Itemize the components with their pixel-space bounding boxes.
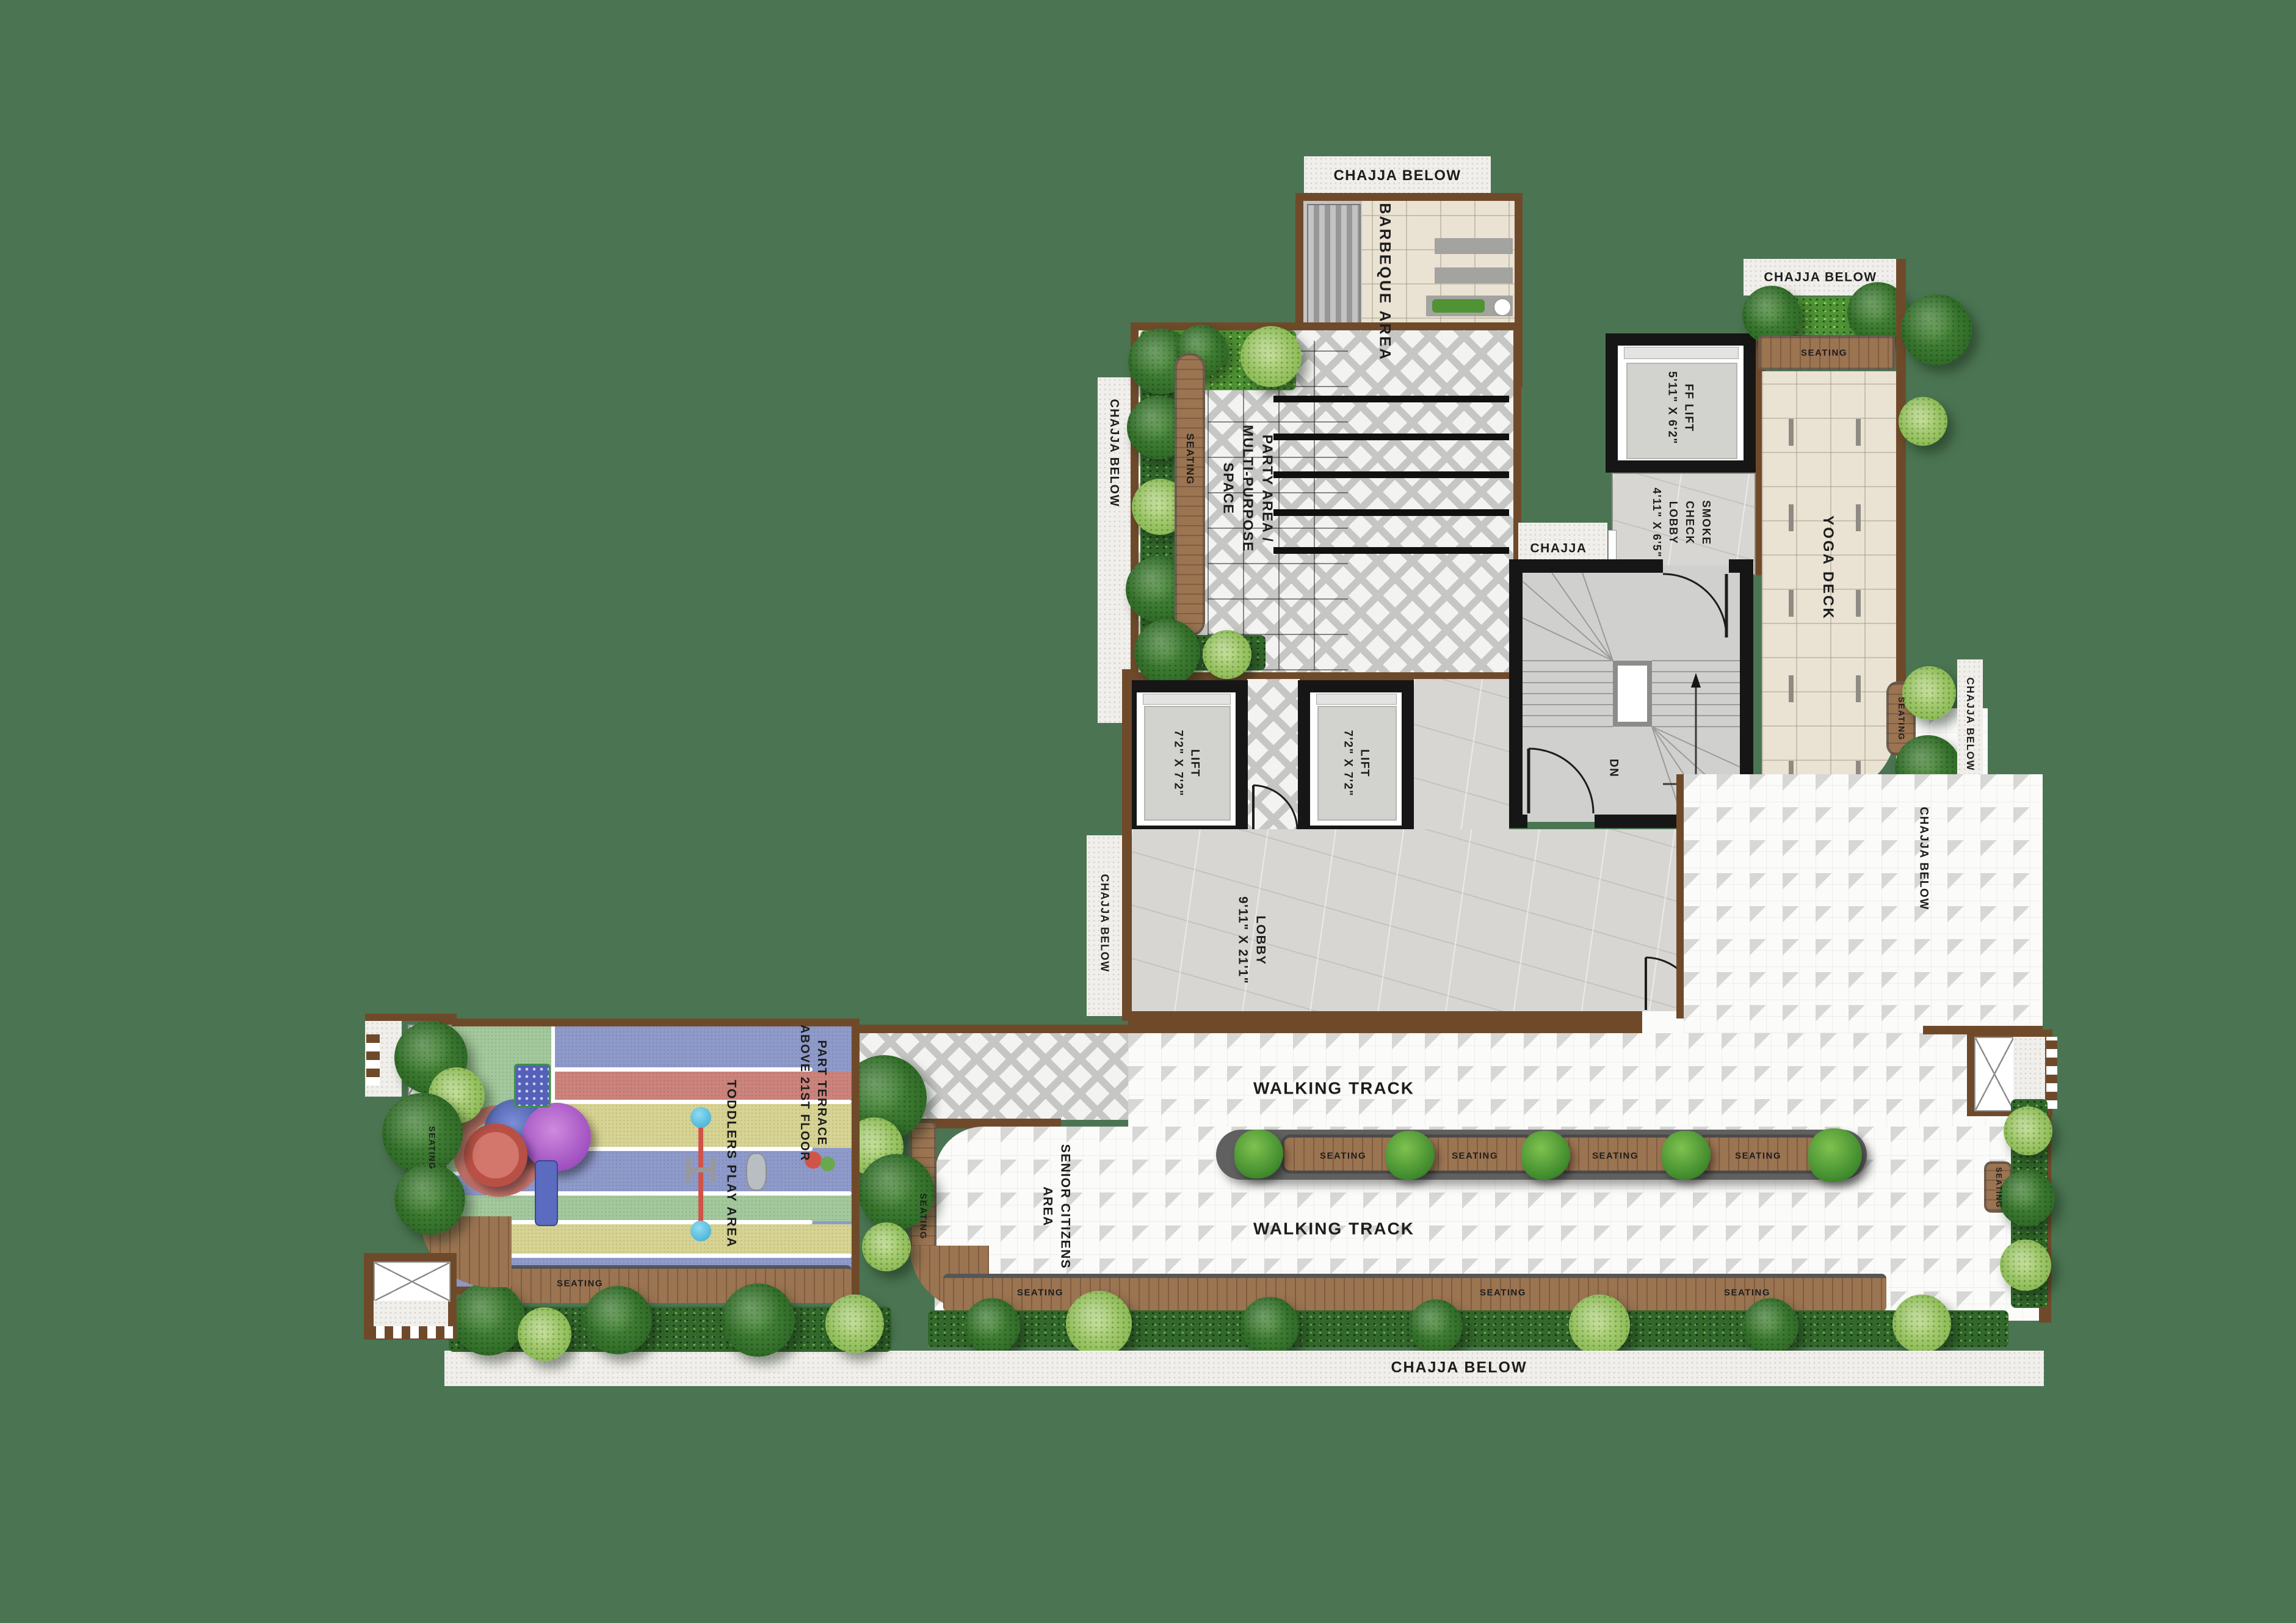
label-barbeque-area: BARBEQUE AREA: [1374, 203, 1396, 361]
label-toddlers-play-area: TODDLERS PLAY AREA: [722, 1080, 740, 1247]
pergola-beam: [1273, 434, 1509, 440]
label-dn: DN: [1605, 759, 1621, 777]
door-arc-passage: [1248, 780, 1300, 833]
label-seating-serp-4: SEATING: [1735, 1150, 1781, 1163]
label-chajja-below-bottom: CHAJJA BELOW: [1391, 1357, 1527, 1379]
tree-icon: [1203, 630, 1251, 679]
tree-icon: [1066, 1291, 1132, 1357]
tree-icon: [2004, 1106, 2052, 1155]
tree-icon: [964, 1298, 1020, 1354]
label-chajja-below-party-left: CHAJJA BELOW: [1106, 399, 1123, 507]
slide-icon: [535, 1160, 558, 1226]
tree-icon: [1240, 326, 1302, 387]
ff-lift-door: [1624, 347, 1739, 359]
edge-checker-right: [2046, 1037, 2057, 1109]
label-chajja-below-right-upper: CHAJJA BELOW: [1963, 677, 1977, 771]
label-chajja-below-yoga: CHAJJA BELOW: [1764, 268, 1877, 286]
terrace-floor-plan: CHAJJA BELOW BARBEQUE AREA CHAJJA BELOW …: [0, 0, 2296, 1623]
passage-to-stairs: [1414, 679, 1509, 832]
grill-counter: [1307, 204, 1361, 332]
label-seating-serp-1: SEATING: [1320, 1150, 1366, 1163]
label-walking-track-1: WALKING TRACK: [1253, 1076, 1414, 1100]
planter-greens: [1432, 299, 1485, 313]
tree-icon: [1240, 1297, 1299, 1356]
spinner-red-icon: [464, 1124, 527, 1187]
lift1-door: [1143, 694, 1231, 705]
tree-icon: [452, 1282, 525, 1356]
barbeque-counter: [1435, 267, 1513, 283]
wall-brown-lobby-left: [1122, 669, 1132, 1021]
play-divider: [485, 1254, 852, 1258]
tree-icon: [1901, 294, 1972, 365]
tree-icon: [382, 1093, 463, 1174]
label-chajja-below-top: CHAJJA BELOW: [1333, 165, 1461, 186]
label-chajja: CHAJJA: [1530, 539, 1587, 557]
label-chajja-below-right-lower: CHAJJA BELOW: [1915, 807, 1932, 910]
sink-circle: [1493, 298, 1512, 316]
label-seating-play-left: SEATING: [426, 1126, 438, 1170]
tree-icon: [584, 1286, 652, 1354]
barbeque-counter: [1435, 238, 1513, 254]
label-walking-track-2: WALKING TRACK: [1253, 1216, 1414, 1240]
seesaw-ball-top-icon: [690, 1107, 711, 1128]
label-seating-serp-3: SEATING: [1592, 1150, 1639, 1163]
edge-checker-left-bottom: [376, 1326, 453, 1338]
tree-icon: [862, 1222, 911, 1271]
tree-icon: [394, 1164, 465, 1235]
chajja-box-left-bottom: [374, 1301, 448, 1326]
tree-icon: [1569, 1294, 1630, 1356]
tree-icon: [722, 1284, 795, 1357]
nook-border-topleft: [365, 1014, 457, 1021]
label-seating-senior-left: SEATING: [917, 1193, 930, 1240]
tricycle-icon: [746, 1153, 767, 1191]
label-chajja-below-lobby-left: CHAJJA BELOW: [1096, 874, 1112, 972]
label-seating-bottom-2: SEATING: [1480, 1287, 1526, 1299]
pergola-beam: [1273, 547, 1509, 554]
duct-box-left-bottom: [374, 1262, 451, 1302]
umbrella-purple-icon: [523, 1103, 591, 1171]
label-part-terrace: PART TERRACE ABOVE 21ST FLOOR: [796, 1025, 830, 1161]
tree-icon: [1899, 397, 1947, 446]
label-lift-1: LIFT 7'2" X 7'2": [1170, 730, 1202, 796]
label-seating-play: SEATING: [557, 1277, 603, 1290]
seesaw-seat-icon: [686, 1158, 715, 1182]
seating-bench-party: [1175, 353, 1205, 636]
yoga-tile-accent: [1789, 379, 1794, 788]
pergola-beam: [1273, 471, 1509, 478]
label-seating-yoga-right: SEATING: [1895, 697, 1907, 741]
label-lobby: LOBBY 9'11" X 21'1": [1234, 896, 1270, 984]
pergola-beam: [1273, 509, 1509, 516]
label-seating-serp-2: SEATING: [1452, 1150, 1498, 1163]
chajja-strip-bottom: [444, 1351, 2044, 1386]
label-seating-bottom-3: SEATING: [1724, 1287, 1770, 1299]
tree-icon: [1134, 619, 1200, 685]
chajja-box-right: [2013, 1037, 2045, 1109]
tree-icon: [1742, 1298, 1798, 1354]
duct-box-right: [1974, 1037, 2015, 1111]
pergola-beam: [1273, 396, 1509, 402]
label-smoke-check-lobby: SMOKE CHECK LOBBY 4'11" X 6'5": [1648, 488, 1714, 558]
lobby-floor: [1132, 829, 1676, 1012]
label-seating-bottom-1: SEATING: [1017, 1287, 1063, 1299]
tree-icon: [1902, 666, 1956, 720]
tree-icon: [1999, 1170, 2055, 1226]
seating-bench-play: [491, 1265, 852, 1303]
edge-checker-left: [366, 1034, 380, 1086]
seesaw-ball-bottom-icon: [690, 1221, 711, 1241]
walking-area-upper: [1684, 774, 2043, 1033]
climber-board-icon: [514, 1064, 551, 1108]
lobby-bottom-border: [1128, 1011, 1685, 1033]
label-party-area: PARTY AREA / MULTI-PURPOSE SPACE: [1219, 425, 1278, 552]
tree-icon: [825, 1294, 884, 1353]
tree-icon: [1892, 1294, 1951, 1353]
tree-icon: [2000, 1240, 2051, 1291]
label-seating-party-bench: SEATING: [1182, 434, 1197, 485]
tree-icon: [518, 1307, 571, 1361]
label-seating-yoga-top: SEATING: [1801, 347, 1847, 360]
label-lift-2: LIFT 7'2" X 7'2": [1339, 730, 1372, 796]
tree-icon: [1409, 1299, 1463, 1353]
label-yoga-deck: YOGA DECK: [1817, 515, 1838, 620]
lift2-door: [1316, 694, 1397, 705]
yoga-tile-accent: [1856, 397, 1861, 788]
label-ff-lift: FF LIFT 5'11" X 6'2": [1664, 371, 1696, 445]
label-seating-right-edge: SEATING: [1993, 1167, 2004, 1208]
label-senior-citizens-area: SENIOR CITIZENS AREA: [1038, 1144, 1074, 1269]
